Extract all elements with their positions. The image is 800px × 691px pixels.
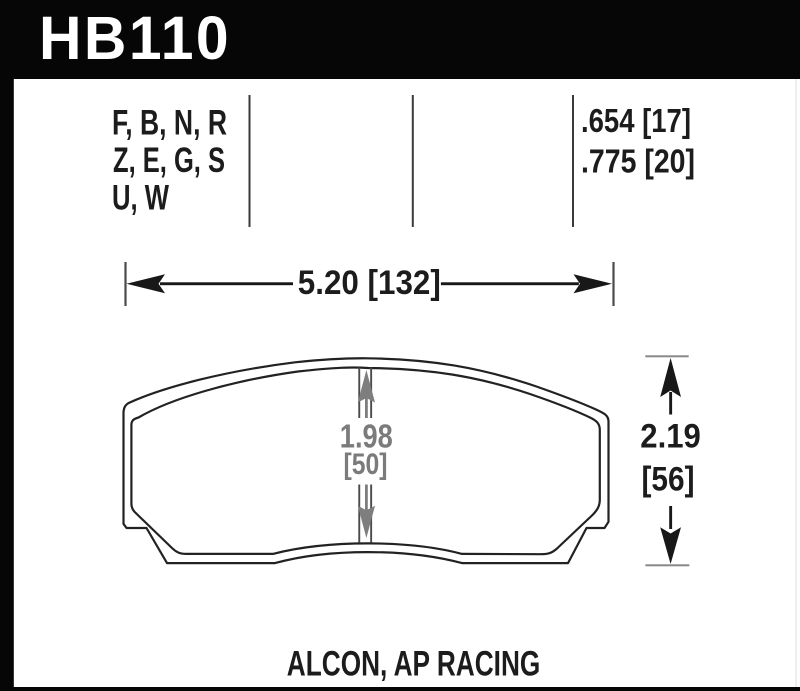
svg-text:2.19: 2.19	[640, 418, 701, 456]
svg-text:5.20 [132]: 5.20 [132]	[298, 264, 441, 302]
svg-text:[50]: [50]	[344, 448, 388, 481]
svg-text:ALCON, AP RACING: ALCON, AP RACING	[287, 643, 541, 683]
svg-text:.775 [20]: .775 [20]	[581, 142, 695, 179]
svg-text:F, B, N, R: F, B, N, R	[112, 103, 227, 143]
svg-text:.654 [17]: .654 [17]	[581, 102, 691, 139]
svg-text:U, W: U, W	[112, 178, 169, 218]
svg-text:Z, E, G, S: Z, E, G, S	[113, 140, 225, 180]
svg-text:HB110: HB110	[39, 4, 231, 72]
svg-text:[56]: [56]	[642, 461, 695, 499]
